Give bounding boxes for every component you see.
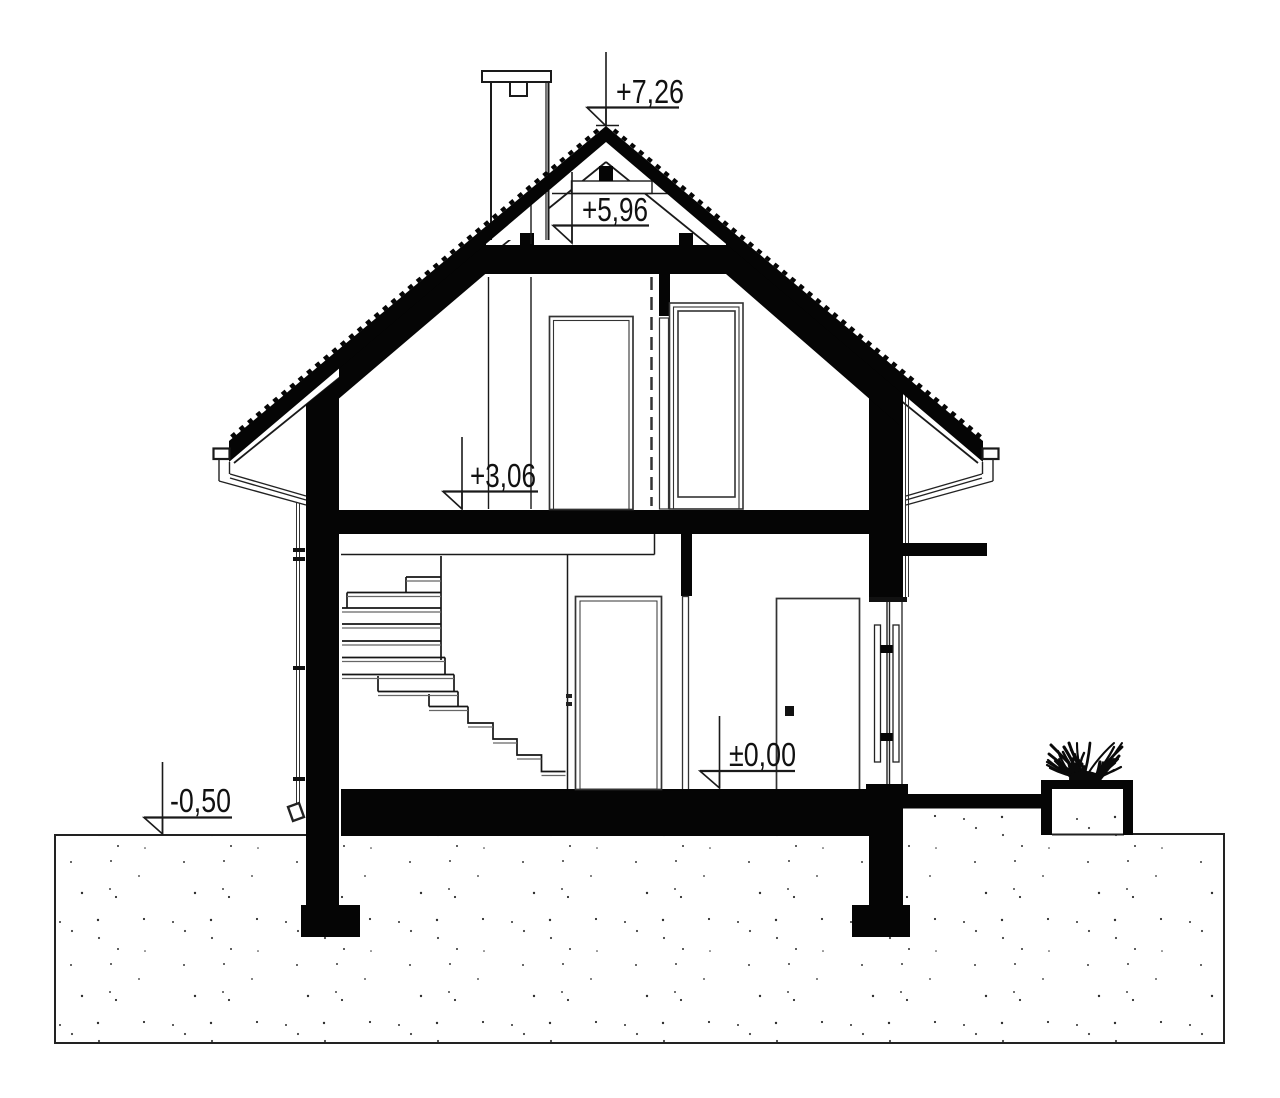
svg-text:±0,00: ±0,00	[729, 736, 796, 773]
svg-text:+7,26: +7,26	[616, 73, 684, 110]
svg-text:-0,50: -0,50	[170, 782, 231, 819]
svg-text:+5,96: +5,96	[582, 191, 648, 228]
svg-text:+3,06: +3,06	[470, 457, 536, 494]
